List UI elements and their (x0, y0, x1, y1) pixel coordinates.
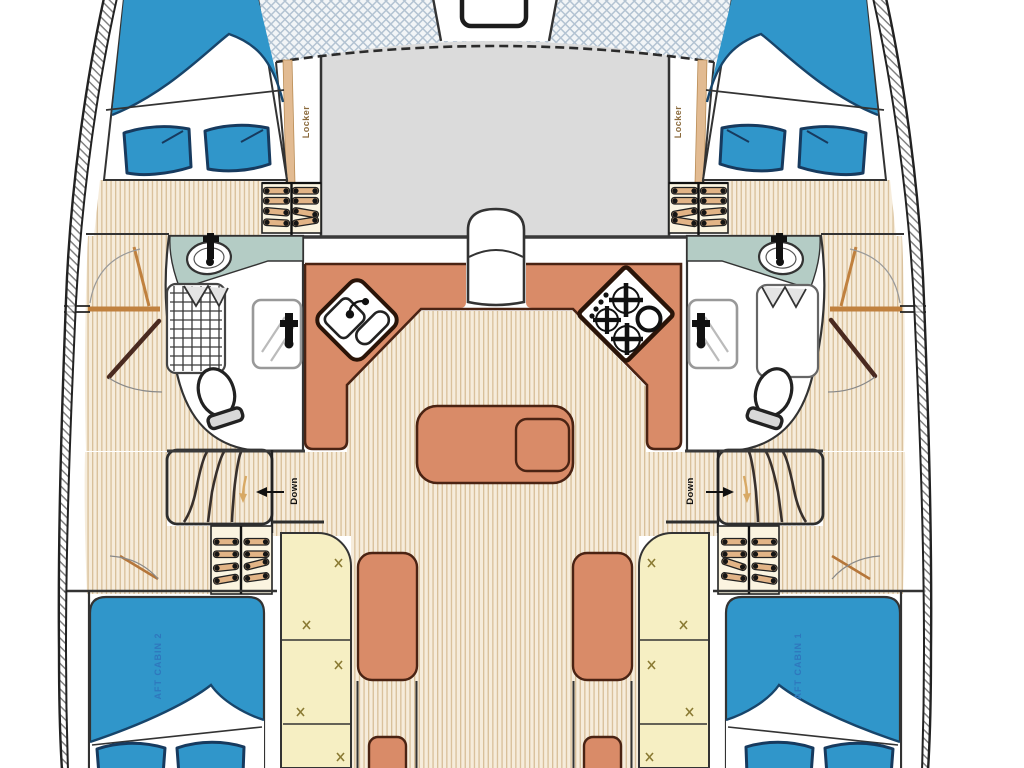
svg-text:Down: Down (289, 477, 300, 504)
svg-text:Locker: Locker (301, 106, 311, 139)
svg-text:Locker: Locker (673, 106, 683, 139)
svg-text:AFT CABIN 1: AFT CABIN 1 (793, 633, 803, 700)
svg-text:AFT CABIN 2: AFT CABIN 2 (153, 633, 163, 700)
svg-text:Down: Down (685, 477, 696, 504)
